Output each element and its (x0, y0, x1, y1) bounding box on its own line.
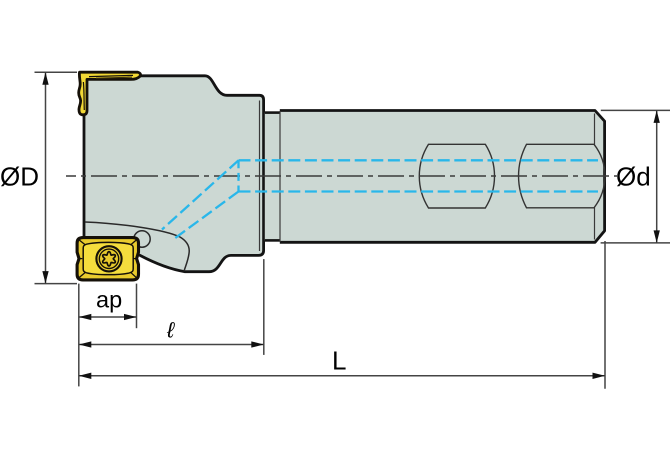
svg-text:Ød: Ød (616, 162, 651, 192)
svg-text:ℓ: ℓ (166, 318, 175, 343)
svg-text:L: L (332, 345, 346, 375)
svg-text:ap: ap (96, 287, 122, 313)
svg-text:ØD: ØD (0, 162, 39, 192)
